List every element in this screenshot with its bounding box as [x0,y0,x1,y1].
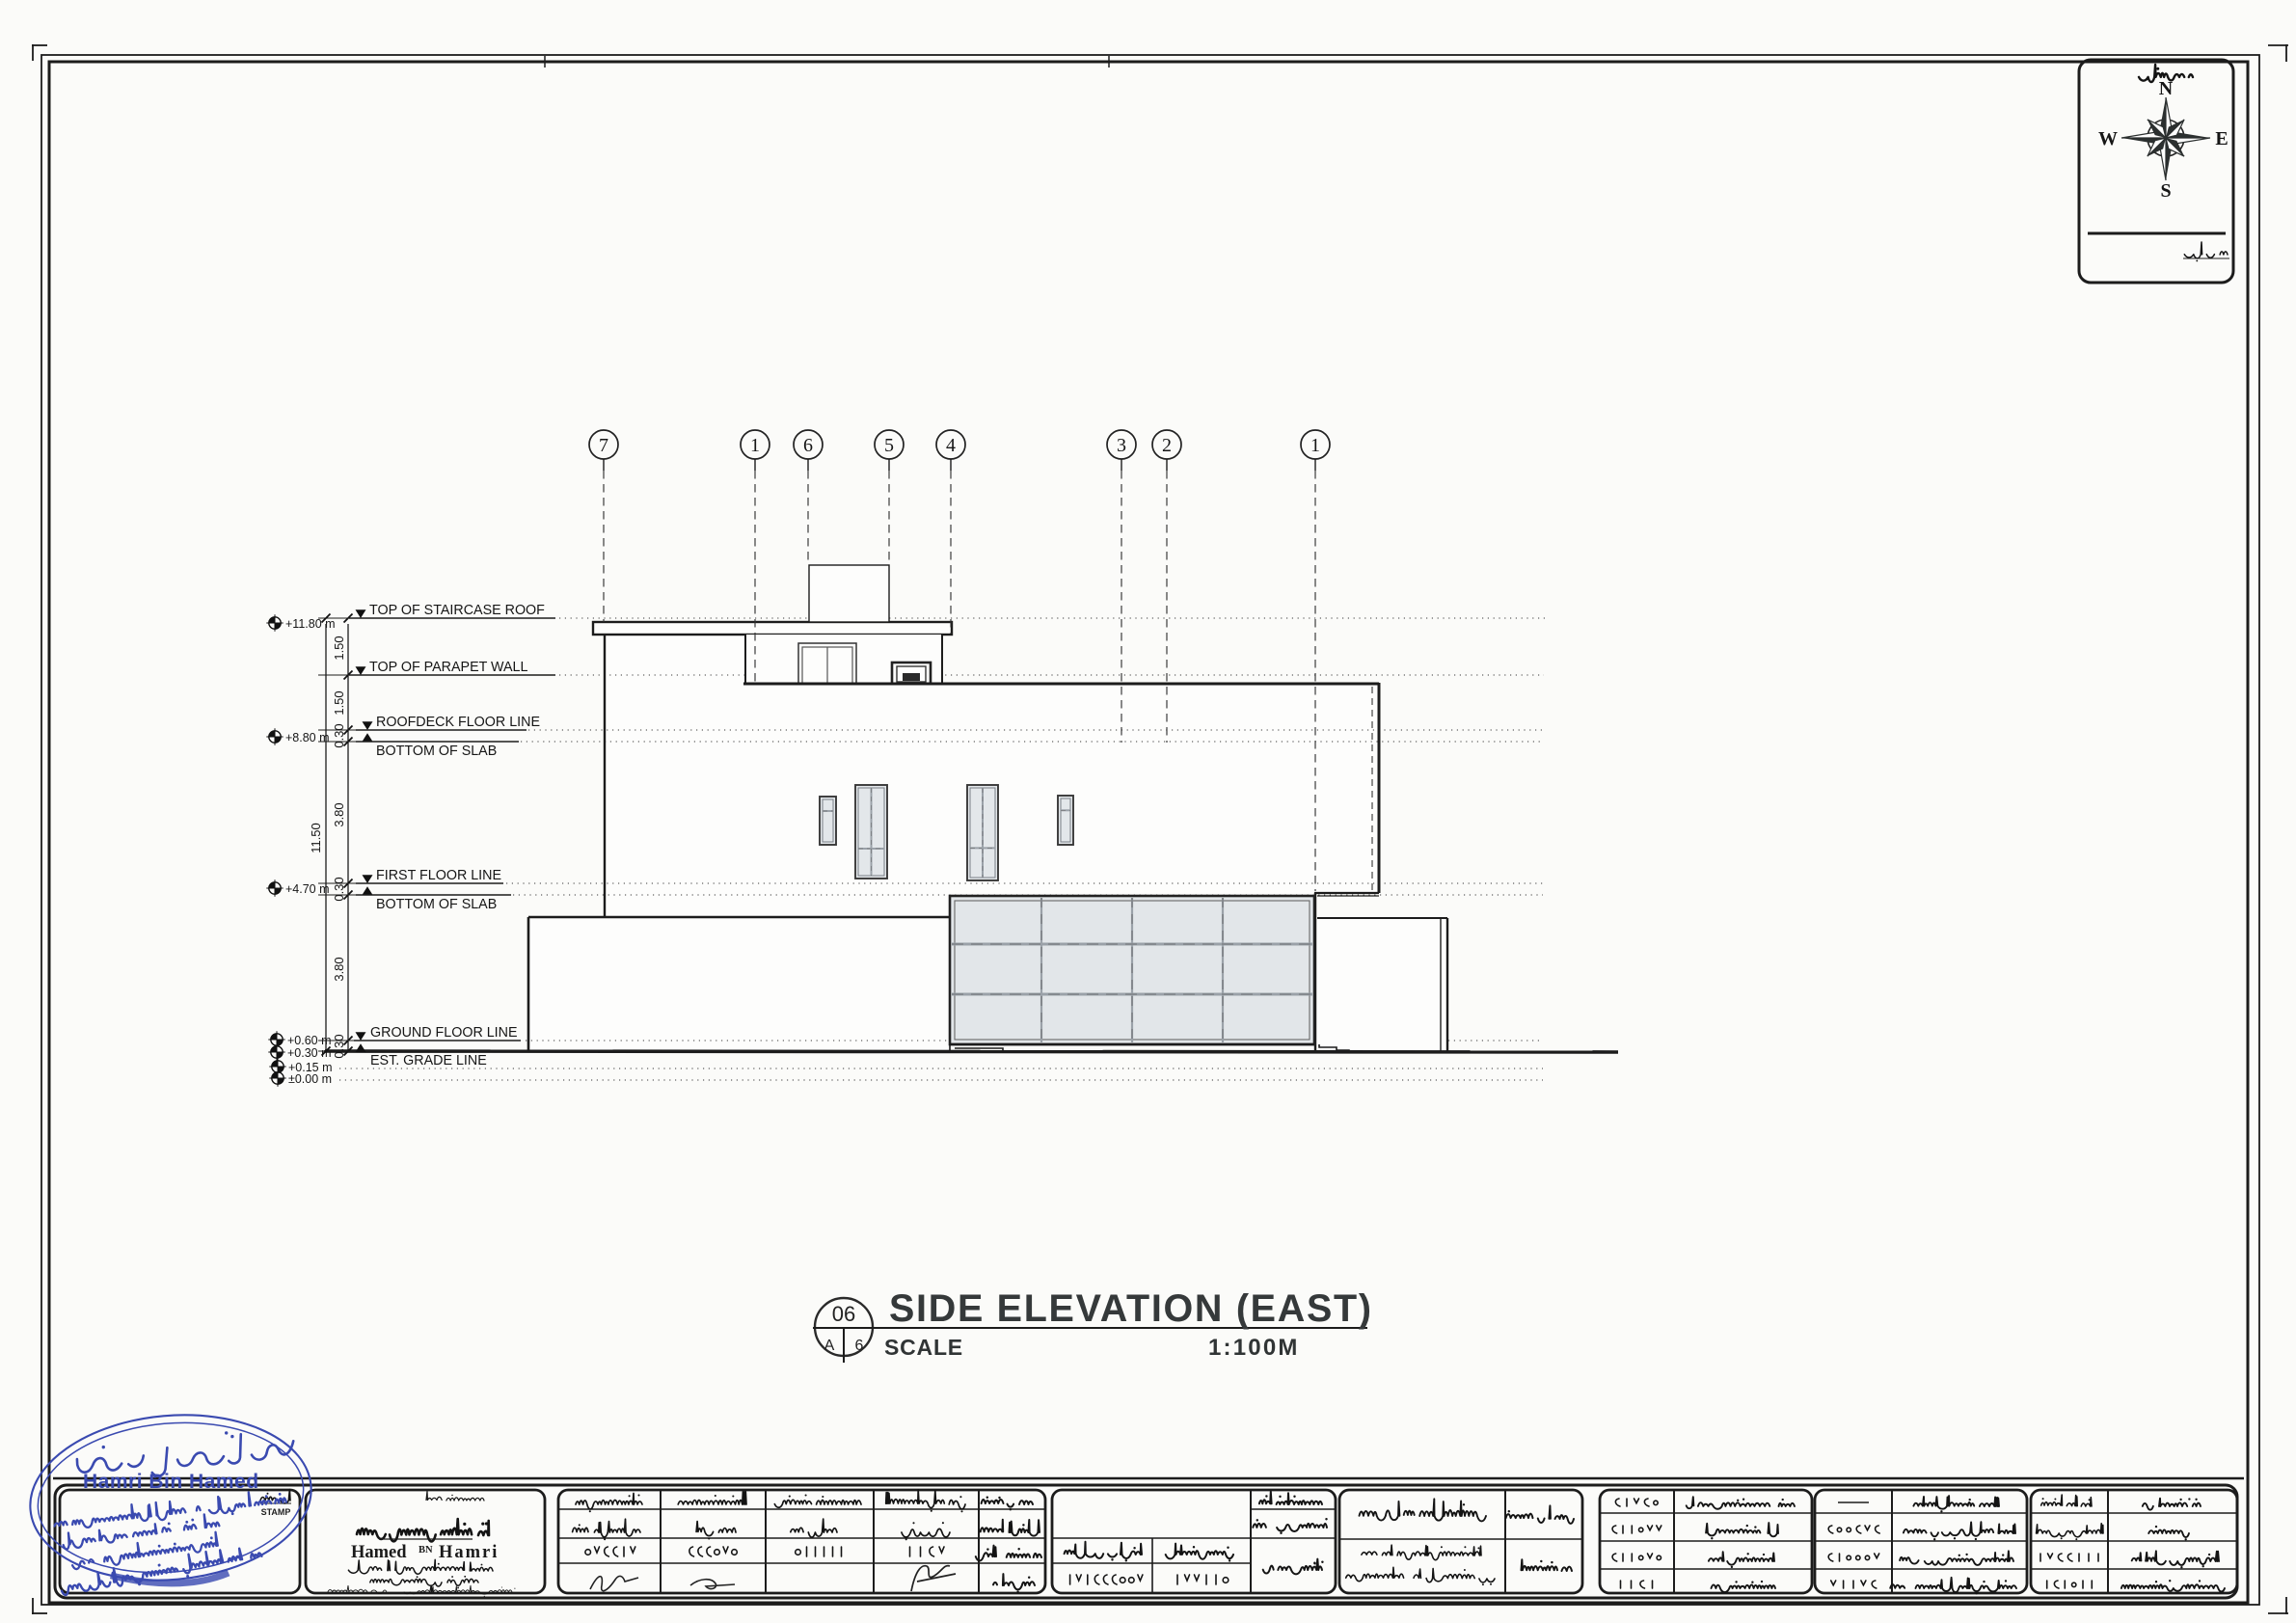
svg-text:6: 6 [855,1338,864,1354]
svg-text:0.30: 0.30 [332,1034,346,1058]
svg-text:BOTTOM OF SLAB: BOTTOM OF SLAB [376,897,497,912]
svg-text:W: W [2098,128,2118,149]
svg-text:+4.70 m: +4.70 m [285,882,330,896]
svg-text:4: 4 [946,435,956,456]
svg-text:6: 6 [803,435,813,456]
svg-text:BN: BN [419,1545,433,1555]
svg-text:ROOFDECK FLOOR LINE: ROOFDECK FLOOR LINE [376,715,540,730]
svg-text:Hamri Bin Hamed: Hamri Bin Hamed [83,1471,259,1493]
svg-text:3.80: 3.80 [332,802,346,826]
svg-text:2: 2 [1162,435,1172,456]
svg-text:GROUND FLOOR LINE: GROUND FLOOR LINE [370,1025,518,1041]
svg-text:TOP OF PARAPET WALL: TOP OF PARAPET WALL [369,660,528,675]
svg-text:1: 1 [750,435,760,456]
svg-text:BOTTOM OF SLAB: BOTTOM OF SLAB [376,744,497,759]
svg-text:1.50: 1.50 [332,636,346,660]
svg-text:FIRST FLOOR LINE: FIRST FLOOR LINE [376,868,501,883]
svg-text:TOP OF STAIRCASE ROOF: TOP OF STAIRCASE ROOF [369,603,545,618]
svg-text:Hamri: Hamri [439,1543,499,1562]
svg-text:0.30: 0.30 [332,723,346,747]
svg-text:E: E [2215,128,2228,149]
svg-text:7: 7 [599,435,608,456]
svg-text:1.50: 1.50 [332,690,346,715]
svg-text:0.30: 0.30 [332,877,346,901]
svg-text:+8.80 m: +8.80 m [285,731,330,744]
svg-text:SIDE ELEVATION (EAST): SIDE ELEVATION (EAST) [889,1287,1373,1330]
svg-text:±0.00 m: ±0.00 m [288,1072,332,1086]
svg-text:+11.80 m: +11.80 m [285,617,336,631]
svg-text:3: 3 [1117,435,1126,456]
svg-text:06: 06 [832,1302,855,1326]
svg-text:A: A [824,1338,835,1354]
svg-text:N: N [2159,78,2174,99]
svg-text:S: S [2160,180,2171,202]
svg-text:EST. GRADE LINE: EST. GRADE LINE [370,1053,487,1068]
svg-text:3.80: 3.80 [332,957,346,981]
svg-text:Hamed: Hamed [351,1543,407,1562]
svg-text:1: 1 [1310,435,1320,456]
svg-text:1:100M: 1:100M [1208,1335,1300,1361]
svg-text:SCALE: SCALE [884,1335,963,1360]
svg-text:STAMP: STAMP [261,1507,291,1517]
svg-text:5: 5 [884,435,894,456]
svg-text:11.50: 11.50 [309,823,323,853]
